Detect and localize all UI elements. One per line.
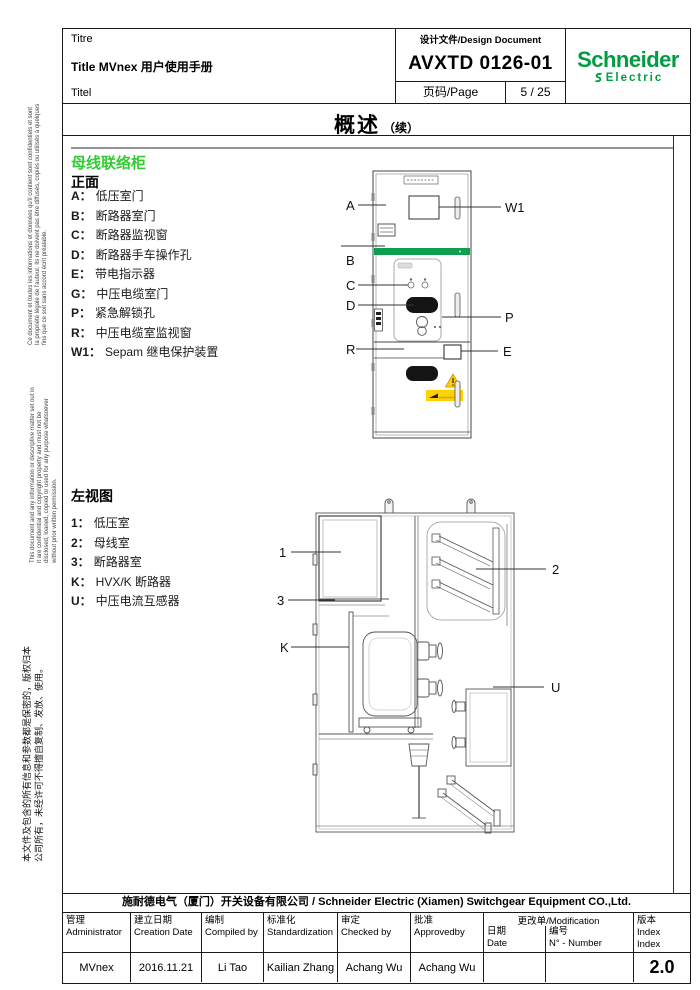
page-number: 5 / 25 [506,82,565,103]
list-item: E：带电指示器 [71,265,218,285]
brand-sub: Electric [593,72,664,84]
value-approved-by: Achang Wu [411,953,484,982]
sepam-relay-window [409,196,439,219]
vent-box [378,224,395,236]
page-label: 页码/Page [396,82,506,103]
mod-date-header: 日期Date [484,926,546,952]
doc-number-cell: 设计文件/Design Document AVXTD 0126-01 页码/Pa… [396,29,566,103]
list-item: C：断路器监视窗 [71,226,218,246]
col-header-modification: 更改单/Modification 日期Date 编号N° - Number [484,913,634,953]
value-compiled-by: Li Tao [202,953,264,982]
page-title: 概述 [334,109,380,139]
title-cell: Titre Title MVnex 用户使用手册 Titel [63,29,396,103]
confidentiality-notice-chinese: 本文件及包含的所有信息和参数都是保密的，版权归本公司所有，未经许可不得擅自复制、… [22,638,45,862]
list-item: K：HVX/K 断路器 [71,573,180,593]
label-1: 1 [279,545,286,560]
side-legend-list: 1：低压室 2：母线室 3：断路器室 K：HVX/K 断路器 U：中压电流互感器 [71,514,180,612]
approval-block: 施耐德电气（厦门）开关设备有限公司 / Schneider Electric (… [63,893,690,983]
label-e: E [503,344,512,359]
approval-table: 管理Administrator 建立日期Creation Date 编制Comp… [63,913,690,982]
title-block: Titre Title MVnex 用户使用手册 Titel 设计文件/Desi… [63,29,690,104]
label-k: K [280,640,289,655]
col-header-administrator: 管理Administrator [63,913,131,953]
list-item: W1：Sepam 继电保护装置 [71,343,218,363]
label-b: B [346,253,355,268]
value-standardization: Kailian Zhang [264,953,338,982]
confidentiality-notice-french: Ce document et toutes les informations e… [28,103,50,345]
col-header-compiled-by: 编制Compiled by [202,913,264,953]
list-item: P：紧急解锁孔 [71,304,218,324]
voltage-indicator [444,345,461,359]
section-title-bar: 概述 （续） [63,104,690,136]
value-checked-by: Achang Wu [338,953,411,982]
document-page: Ce document et toutes les informations e… [0,0,700,990]
door-handle [455,381,460,407]
col-header-checked-by: 审定Checked by [338,913,411,953]
brand-logo: Schneider [577,49,679,71]
page-row: 页码/Page 5 / 25 [396,81,565,103]
list-item: 3：断路器室 [71,553,180,573]
col-header-standardization: 标准化Standardization [264,913,338,953]
value-administrator: MVnex [63,953,131,982]
striped-label [375,309,383,331]
cable-room-window [406,366,438,381]
brand-sub-label: Electric [606,72,664,84]
label-r: R [346,342,355,357]
list-item: 2：母线室 [71,534,180,554]
door-handle [455,197,460,219]
label-u: U [551,680,560,695]
label-c: C [346,278,355,293]
titel-label: Titel [71,87,387,99]
cabinet-side [313,499,514,833]
side-view-heading: 左视图 [71,486,113,506]
cabinet-front [372,171,472,438]
section-divider [71,147,673,149]
value-creation-date: 2016.11.21 [131,953,202,982]
lifting-lugs [385,499,475,513]
side-view-diagram: 1 3 K 2 U [271,496,571,876]
inner-margin-rule [673,136,674,894]
titre-label: Titre [71,33,387,45]
label-a: A [346,198,355,213]
label-w1: W1 [505,200,525,215]
cabinet-heading: 母线联络柜 [71,152,146,173]
list-item: R：中压电缆室监视窗 [71,324,218,344]
label-3: 3 [277,593,284,608]
list-item: 1：低压室 [71,514,180,534]
door-handle [455,293,460,317]
label-2: 2 [552,562,559,577]
col-header-index: 版本 Index Index [634,913,690,953]
confidentiality-notice-english: This document and any information or des… [30,387,59,563]
document-number: AVXTD 0126-01 [396,46,565,81]
mod-number-header: 编号N° - Number [546,926,633,952]
breaker-panel [394,259,441,341]
col-header-approved-by: 批准Approvedby [411,913,484,953]
list-item: B：断路器室门 [71,207,218,227]
front-legend-list: A：低压室门 B：断路器室门 C：断路器监视窗 D：断路器手车操作孔 E：带电指… [71,187,218,363]
company-name: 施耐德电气（厦门）开关设备有限公司 / Schneider Electric (… [63,894,690,913]
schneider-glyph-icon [593,72,604,83]
label-d: D [346,298,355,313]
green-band [374,248,470,255]
value-mod-number [546,953,634,982]
nameplate [404,176,438,184]
list-item: D：断路器手车操作孔 [71,246,218,266]
list-item: U：中压电流互感器 [71,592,180,612]
value-mod-date [484,953,546,982]
design-document-label: 设计文件/Design Document [396,29,565,46]
page-title-suffix: （续） [383,119,419,136]
list-item: A：低压室门 [71,187,218,207]
col-header-creation-date: 建立日期Creation Date [131,913,202,953]
list-item: G：中压电缆室门 [71,285,218,305]
front-view-diagram: A B C D R W1 P E [338,169,563,444]
brand-cell: Schneider Electric [566,29,690,103]
label-p: P [505,310,514,325]
document-title: Title MVnex 用户使用手册 [71,58,387,75]
value-index: 2.0 [634,953,690,982]
document-frame: Titre Title MVnex 用户使用手册 Titel 设计文件/Desi… [62,28,691,984]
